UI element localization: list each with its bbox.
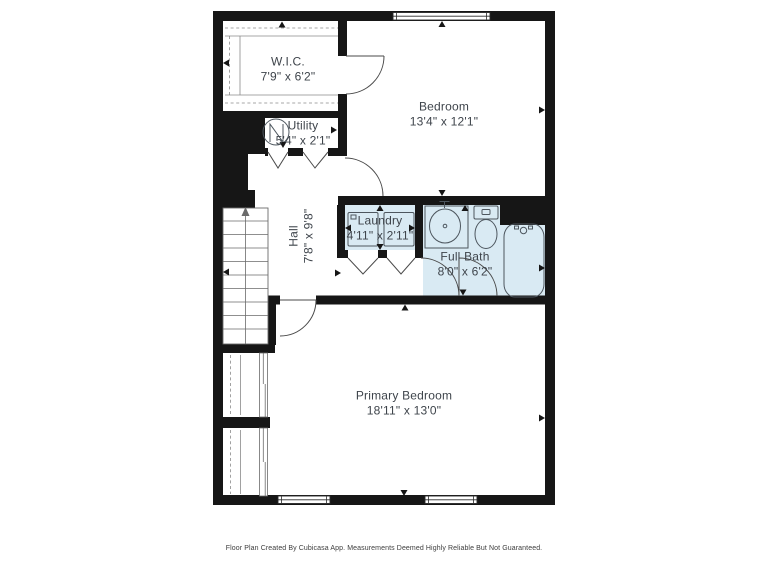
floor-plan-page: W.I.C. 7'9" x 6'2" Bedroom 13'4" x 12'1"… (0, 0, 768, 576)
room-dims: 8'0" x 6'2" (438, 264, 493, 279)
room-name: Utility (276, 119, 331, 134)
room-dims: 13'4" x 12'1" (410, 114, 478, 129)
room-label-hall: Hall 7'8" x 9'8" (287, 209, 316, 264)
disclaimer-text: Floor Plan Created By Cubicasa App. Meas… (0, 545, 768, 552)
room-label-wic: W.I.C. 7'9" x 6'2" (261, 55, 316, 84)
room-label-laundry: Laundry 4'11" x 2'11" (347, 214, 414, 243)
room-name: Bedroom (410, 100, 478, 115)
room-dims: 18'11" x 13'0" (356, 403, 452, 418)
door-primary-bedroom (280, 300, 316, 336)
room-name: W.I.C. (261, 55, 316, 70)
door-hall-to-bedroom (345, 158, 383, 196)
bifold-utility-right (303, 152, 328, 168)
room-name: Hall (287, 209, 302, 264)
room-name: Primary Bedroom (356, 389, 452, 404)
room-name: Full Bath (438, 250, 493, 265)
bifold-laundry-right (387, 258, 415, 274)
window-primary-bottom-right (425, 496, 477, 504)
room-label-primary-bedroom: Primary Bedroom 18'11" x 13'0" (356, 389, 452, 418)
floor-plan-drawing (0, 0, 768, 576)
bifold-laundry-left (348, 258, 378, 274)
room-label-utility: Utility 5'4" x 2'1" (276, 119, 331, 148)
room-dims: 5'4" x 2'1" (276, 133, 331, 148)
bifold-utility-left (268, 152, 288, 168)
room-dims: 4'11" x 2'11" (347, 228, 414, 243)
door-wic-to-bedroom (346, 56, 384, 94)
staircase (223, 207, 268, 344)
window-primary-bottom-left (278, 496, 330, 504)
room-label-full-bath: Full Bath 8'0" x 6'2" (438, 250, 493, 279)
window-bedroom-top (393, 13, 490, 21)
room-label-bedroom: Bedroom 13'4" x 12'1" (410, 100, 478, 129)
room-dims: 7'8" x 9'8" (301, 209, 316, 264)
room-name: Laundry (347, 214, 414, 229)
room-dims: 7'9" x 6'2" (261, 69, 316, 84)
